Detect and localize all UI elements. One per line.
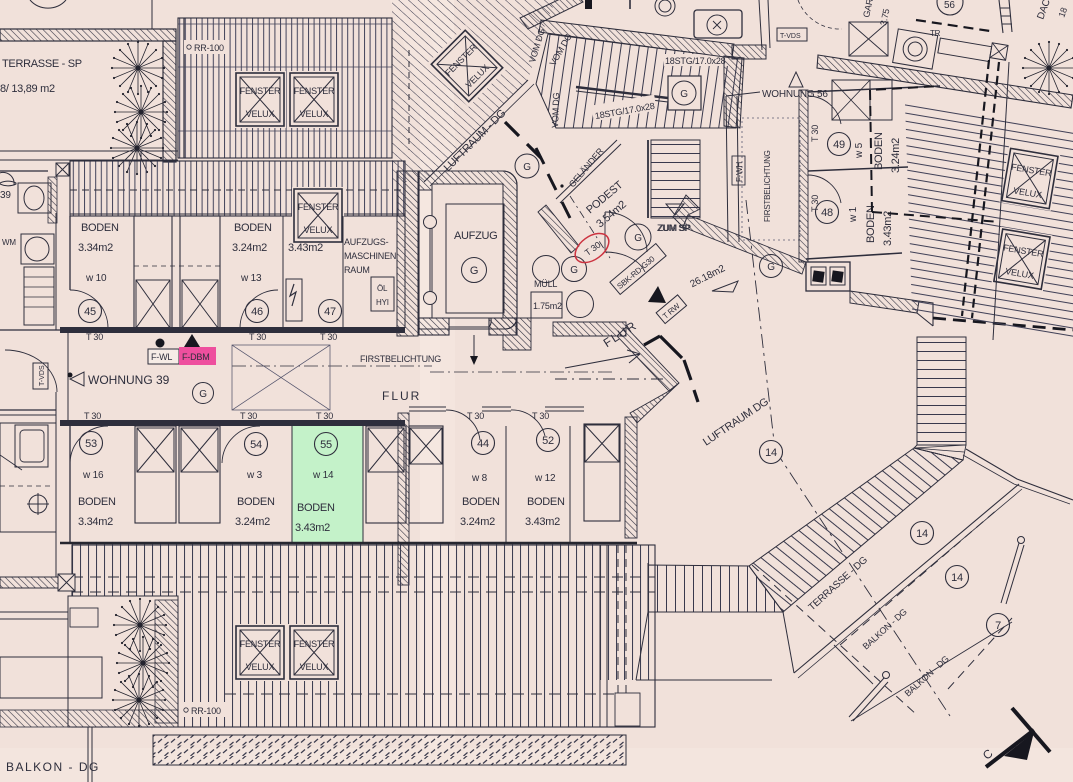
svg-text:ÖL: ÖL xyxy=(377,284,388,293)
svg-text:T-VDS: T-VDS xyxy=(780,33,801,40)
svg-text:TERRASSE - SP: TERRASSE - SP xyxy=(2,58,82,70)
svg-text:T 30: T 30 xyxy=(86,332,103,342)
svg-text:BODEN: BODEN xyxy=(462,496,500,508)
svg-text:3.43m2: 3.43m2 xyxy=(525,516,560,528)
svg-text:3.43m2: 3.43m2 xyxy=(288,242,323,254)
svg-text:BODEN: BODEN xyxy=(527,496,565,508)
svg-text:BALKON - DG: BALKON - DG xyxy=(6,760,100,774)
svg-text:WOHNUNG 39: WOHNUNG 39 xyxy=(88,373,170,387)
svg-text:G: G xyxy=(570,265,578,276)
svg-text:14: 14 xyxy=(951,572,963,584)
svg-text:w 14: w 14 xyxy=(312,470,334,481)
svg-text:44: 44 xyxy=(477,438,489,450)
svg-text:RAUM: RAUM xyxy=(344,265,370,275)
svg-text:G: G xyxy=(680,89,688,100)
svg-text:45: 45 xyxy=(84,306,96,318)
svg-text:MÜLL: MÜLL xyxy=(534,279,557,289)
svg-text:T 30: T 30 xyxy=(240,411,257,421)
svg-text:RR-100: RR-100 xyxy=(194,43,224,53)
svg-text:G: G xyxy=(634,233,642,244)
svg-text:46: 46 xyxy=(251,306,263,318)
svg-text:56: 56 xyxy=(944,0,955,11)
svg-text:w 3: w 3 xyxy=(246,470,263,481)
svg-text:52: 52 xyxy=(542,435,554,447)
svg-text:T 30: T 30 xyxy=(84,411,101,421)
svg-text:T 30: T 30 xyxy=(810,195,820,212)
svg-text:w 12: w 12 xyxy=(534,473,556,484)
svg-text:w 5: w 5 xyxy=(854,142,865,159)
svg-text:FIRSTBELICHTUNG: FIRSTBELICHTUNG xyxy=(360,354,441,364)
svg-text:F-WH: F-WH xyxy=(735,161,744,182)
svg-text:BODEN: BODEN xyxy=(81,222,119,234)
svg-text:G: G xyxy=(767,262,775,273)
svg-text:3.43m2: 3.43m2 xyxy=(882,211,894,246)
svg-text:BODEN: BODEN xyxy=(297,502,335,514)
svg-text:BODEN: BODEN xyxy=(237,496,275,508)
svg-text:3.24m2: 3.24m2 xyxy=(235,516,270,528)
svg-text:1.75m2: 1.75m2 xyxy=(533,301,562,311)
svg-text:53: 53 xyxy=(85,438,97,450)
svg-text:BODEN: BODEN xyxy=(873,132,885,170)
svg-text:RR-100: RR-100 xyxy=(191,706,221,716)
svg-text:14: 14 xyxy=(765,447,777,459)
svg-text:w 1: w 1 xyxy=(848,206,859,223)
svg-text:T 30: T 30 xyxy=(810,125,820,142)
svg-text:48: 48 xyxy=(821,207,833,219)
svg-text:55: 55 xyxy=(320,439,332,451)
svg-text:8/ 13,89 m2: 8/ 13,89 m2 xyxy=(0,83,55,95)
svg-text:BODEN: BODEN xyxy=(234,222,272,234)
svg-text:FLUR: FLUR xyxy=(382,389,421,403)
svg-text:TR: TR xyxy=(930,29,941,38)
svg-text:G: G xyxy=(470,265,478,277)
svg-text:18STG/17.0x28: 18STG/17.0x28 xyxy=(665,56,726,66)
svg-text:BODEN: BODEN xyxy=(78,496,116,508)
svg-text:w 8: w 8 xyxy=(471,473,488,484)
svg-text:T 30: T 30 xyxy=(320,332,337,342)
svg-text:VOM DG: VOM DG xyxy=(550,92,561,128)
svg-text:3.43m2: 3.43m2 xyxy=(295,522,330,534)
svg-text:T-VDS: T-VDS xyxy=(39,365,46,386)
svg-text:WOHNUNG 56: WOHNUNG 56 xyxy=(762,89,828,100)
svg-text:3.24m2: 3.24m2 xyxy=(890,138,902,173)
svg-text:T 30: T 30 xyxy=(316,411,333,421)
svg-text:F-DBM: F-DBM xyxy=(182,352,210,362)
svg-text:WM: WM xyxy=(2,238,16,247)
svg-text:w 16: w 16 xyxy=(82,470,104,481)
svg-text:F-WL: F-WL xyxy=(151,352,172,362)
svg-text:39: 39 xyxy=(0,190,11,201)
svg-text:T 30: T 30 xyxy=(532,411,549,421)
svg-text:T 30: T 30 xyxy=(249,332,266,342)
svg-text:49: 49 xyxy=(833,139,845,151)
svg-text:MASCHINEN: MASCHINEN xyxy=(344,251,396,261)
svg-text:3.24m2: 3.24m2 xyxy=(232,242,267,254)
svg-text:54: 54 xyxy=(250,439,262,451)
svg-text:47: 47 xyxy=(324,306,336,318)
svg-text:14: 14 xyxy=(916,528,928,540)
svg-text:HYI: HYI xyxy=(376,298,389,307)
svg-text:FIRSTBELICHTUNG: FIRSTBELICHTUNG xyxy=(763,150,772,222)
svg-text:AUFZUG: AUFZUG xyxy=(454,230,497,242)
svg-text:w 10: w 10 xyxy=(85,273,107,284)
svg-text:3.34m2: 3.34m2 xyxy=(78,242,113,254)
svg-text:w 13: w 13 xyxy=(240,273,262,284)
svg-text:3.24m2: 3.24m2 xyxy=(460,516,495,528)
svg-text:AUFZUGS-: AUFZUGS- xyxy=(344,237,389,247)
svg-text:G: G xyxy=(199,389,207,400)
svg-text:G: G xyxy=(523,162,531,173)
svg-text:3.34m2: 3.34m2 xyxy=(78,516,113,528)
